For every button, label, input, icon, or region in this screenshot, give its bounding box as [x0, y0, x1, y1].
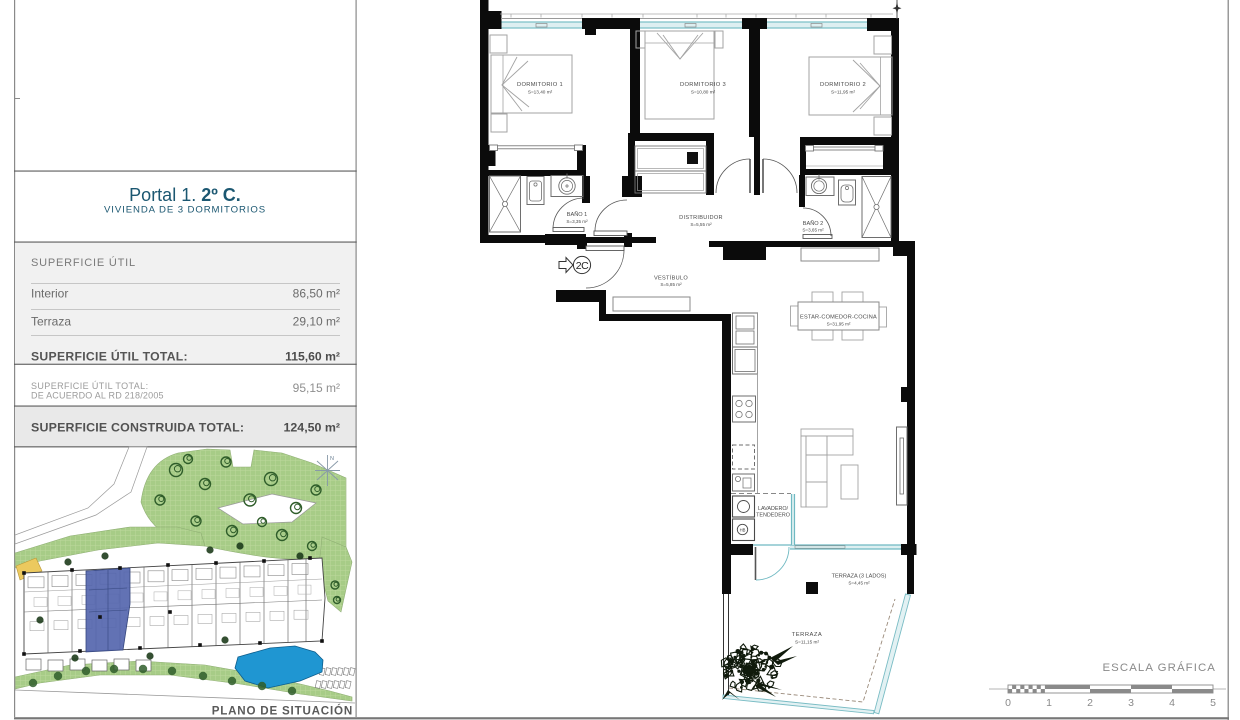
svg-text:S=5,55 m²: S=5,55 m² [690, 222, 712, 227]
svg-text:TENDEDERO: TENDEDERO [756, 513, 790, 519]
svg-text:S=10,80 m²: S=10,80 m² [691, 90, 716, 95]
svg-text:VESTÍBULO: VESTÍBULO [654, 275, 688, 282]
svg-text:ESCALA GRÁFICA: ESCALA GRÁFICA [1102, 661, 1216, 674]
svg-text:SUPERFICIE ÚTIL TOTAL:: SUPERFICIE ÚTIL TOTAL: [31, 381, 149, 391]
svg-text:DE ACUERDO AL RD 218/2005: DE ACUERDO AL RD 218/2005 [31, 391, 164, 401]
svg-text:ESTAR-COMEDOR-COCINA: ESTAR-COMEDOR-COCINA [800, 315, 877, 321]
svg-text:115,60 m²: 115,60 m² [285, 350, 340, 364]
svg-text:Interior: Interior [31, 287, 68, 301]
svg-text:SUPERFICIE ÚTIL TOTAL:: SUPERFICIE ÚTIL TOTAL: [31, 349, 188, 364]
svg-text:BAÑO 2: BAÑO 2 [803, 220, 824, 227]
svg-text:TERRAZA (3 LADOS): TERRAZA (3 LADOS) [832, 574, 887, 580]
svg-text:SUPERFICIE CONSTRUIDA TOTAL:: SUPERFICIE CONSTRUIDA TOTAL: [31, 421, 244, 435]
svg-text:S=31,95 m²: S=31,95 m² [827, 322, 851, 327]
svg-text:S=5,85 m²: S=5,85 m² [660, 282, 682, 287]
svg-text:86,50 m²: 86,50 m² [293, 287, 340, 301]
svg-text:Terraza: Terraza [31, 315, 71, 329]
svg-text:S=13,40 m²: S=13,40 m² [528, 90, 553, 95]
svg-text:S=3,35 m²: S=3,35 m² [566, 219, 588, 224]
svg-text:BAÑO 1: BAÑO 1 [567, 211, 588, 218]
svg-text:0: 0 [1005, 697, 1011, 709]
svg-text:TERRAZA: TERRAZA [792, 632, 823, 638]
svg-text:2C: 2C [576, 260, 589, 272]
svg-text:124,50 m²: 124,50 m² [284, 421, 340, 435]
svg-text:S=11,15 m²: S=11,15 m² [795, 640, 819, 645]
svg-text:5: 5 [1210, 697, 1216, 709]
svg-text:N: N [330, 456, 334, 462]
svg-text:2: 2 [1087, 697, 1093, 709]
svg-text:3: 3 [1128, 697, 1134, 709]
svg-text:S=3,65 m²: S=3,65 m² [802, 228, 824, 233]
svg-text:SUPERFICIE ÚTIL: SUPERFICIE ÚTIL [31, 256, 136, 269]
svg-text:DORMITORIO 3: DORMITORIO 3 [680, 82, 726, 88]
svg-text:PLANO DE SITUACIÓN: PLANO DE SITUACIÓN [212, 705, 353, 718]
svg-text:DISTRIBUIDOR: DISTRIBUIDOR [679, 215, 723, 221]
svg-text:29,10 m²: 29,10 m² [293, 315, 340, 329]
svg-text:DORMITORIO 1: DORMITORIO 1 [517, 82, 563, 88]
svg-text:VIVIENDA DE 3 DORMITORIOS: VIVIENDA DE 3 DORMITORIOS [104, 205, 266, 216]
svg-text:4: 4 [1169, 697, 1175, 709]
svg-text:LAVADERO/: LAVADERO/ [758, 506, 789, 512]
svg-text:DORMITORIO 2: DORMITORIO 2 [820, 82, 866, 88]
svg-text:1: 1 [1046, 697, 1052, 709]
svg-text:95,15 m²: 95,15 m² [293, 381, 340, 395]
svg-text:S=4,45 m²: S=4,45 m² [848, 581, 870, 586]
svg-text:S=11,95 m²: S=11,95 m² [831, 90, 855, 95]
svg-text:Portal 1. 2º C.: Portal 1. 2º C. [129, 185, 241, 205]
svg-text:HB: HB [740, 527, 746, 532]
